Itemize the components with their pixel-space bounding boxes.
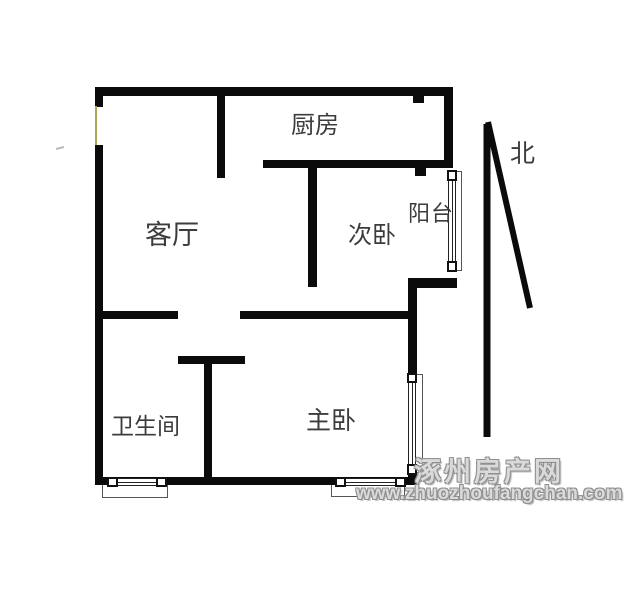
label-bedroom2: 次卧 (348, 224, 396, 248)
balcony-window-end-top (447, 170, 457, 181)
door-tick-balcony (415, 168, 426, 176)
balcony-window-end-bottom (447, 261, 457, 272)
label-kitchen: 厨房 (291, 114, 339, 138)
floor-plan: 厨房 客厅 次卧 阳台 卫生间 主卧 北 涿州房产网 www.zhuozhouf… (0, 0, 629, 600)
balcony-window-sill (456, 171, 462, 271)
wall-kitchen-divider (217, 96, 225, 178)
bathroom-window-pane (117, 478, 158, 486)
wall-middle-right-segment (240, 311, 417, 319)
master-bottom-window-end-left (335, 477, 346, 487)
bathroom-window-end-left (107, 477, 118, 487)
wall-left-upper-stub (95, 87, 103, 107)
door-tick-kitchen (413, 95, 424, 103)
master-right-window-end-top (407, 373, 417, 383)
label-bathroom: 卫生间 (111, 415, 180, 438)
wall-right-upper (444, 95, 453, 168)
watermark-site-name: 涿州房产网 (414, 459, 564, 486)
wall-balcony-bottom (410, 278, 457, 288)
stray-mark (56, 146, 64, 150)
wall-kitchen-bottom (263, 160, 453, 168)
entry-door-line (95, 106, 97, 146)
label-master-bedroom: 主卧 (306, 409, 356, 434)
label-balcony: 阳台 (408, 203, 454, 225)
wall-top (95, 87, 453, 96)
wall-right-lower-upper (408, 278, 417, 373)
wall-bathroom-divider (204, 356, 212, 477)
label-living-room: 客厅 (145, 222, 199, 249)
bathroom-window-end-right (156, 477, 167, 487)
wall-bedroom2-left (308, 168, 317, 287)
wall-middle-left-segment (95, 311, 178, 319)
label-north: 北 (510, 142, 535, 167)
watermark-site-url: www.zhuozhoufangchan.com (356, 484, 622, 503)
master-right-window-pane (408, 382, 416, 465)
